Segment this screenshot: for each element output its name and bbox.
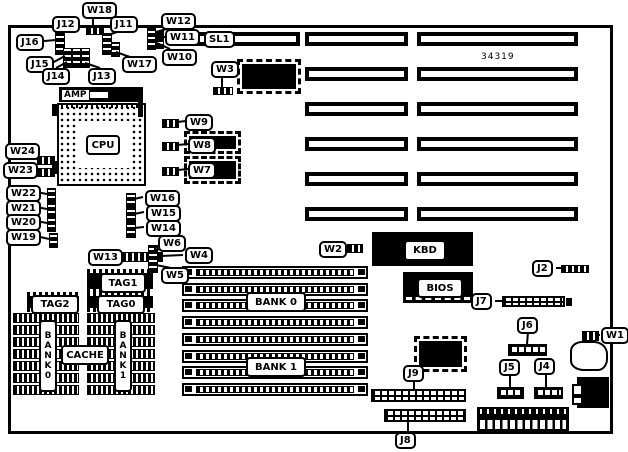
tag0-label: TAG0: [97, 295, 145, 314]
j6-connector: [508, 344, 547, 356]
j2-connector: [561, 265, 589, 273]
simm-socket: [182, 383, 368, 396]
simm-bank0-label: BANK 0: [246, 292, 306, 312]
expansion-slot-segment: [305, 32, 408, 46]
simm-socket: [182, 333, 368, 346]
motherboard-diagram: 34319 SL1 AMP CPU KBD BIOS TAG1 TAG2 TAG…: [0, 0, 628, 452]
simm-socket: [182, 316, 368, 329]
jumper-w3: [213, 87, 233, 95]
keyboard-opening-outline: [570, 341, 608, 371]
jumper-w16: [126, 193, 136, 208]
jumper-w1: [582, 331, 599, 341]
jumper-w12-w10: [147, 27, 156, 50]
jumper-w8: [162, 142, 179, 151]
jumper-w19: [49, 233, 58, 248]
amp-slot-opening: [90, 92, 108, 98]
expansion-slot-segment: [417, 67, 578, 81]
expansion-slot-segment: [305, 137, 408, 151]
simm-socket-contacts: [196, 386, 354, 393]
jumper-w7: [162, 167, 179, 176]
callout-w19: W19: [6, 229, 41, 246]
cache-bank1-label: BANK1: [114, 320, 132, 392]
callout-j14: J14: [42, 68, 70, 85]
callout-w11: W11: [165, 29, 200, 46]
expansion-slot-segment: [305, 172, 408, 186]
jumper-w22: [47, 188, 56, 203]
amp-brand-label: AMP: [61, 89, 90, 101]
callout-j11: J11: [110, 16, 138, 33]
callout-j9: J9: [403, 365, 424, 382]
expansion-slot-segment: [417, 207, 578, 221]
callout-j7: J7: [471, 293, 492, 310]
simm-socket-contacts: [196, 319, 354, 326]
callout-j6: J6: [517, 317, 538, 334]
callout-w24: W24: [5, 143, 40, 160]
cache-label: CACHE: [61, 345, 109, 365]
jumper-w15: [126, 208, 136, 223]
expansion-slot-segment: [305, 207, 408, 221]
cpu-label: CPU: [86, 135, 120, 155]
j8-connector: [384, 409, 466, 422]
j7-connector: [502, 296, 565, 307]
expansion-slot-segment: [305, 102, 408, 116]
j9-connector: [371, 389, 466, 402]
simm-socket-contacts: [196, 336, 354, 343]
callout-w12: W12: [161, 13, 196, 30]
callout-w4: W4: [185, 247, 213, 264]
chip-near-w3: [237, 59, 301, 94]
callout-w9: W9: [185, 114, 213, 131]
jumper-w21: [47, 203, 56, 218]
callout-w10: W10: [162, 49, 197, 66]
callout-w13: W13: [88, 249, 123, 266]
expansion-slot-segment: [305, 67, 408, 81]
jumper-w17: [111, 42, 120, 57]
expansion-slot-segment: [417, 137, 578, 151]
jumper-w20: [47, 217, 56, 232]
jumper-w11: [156, 31, 164, 49]
callout-j5: J5: [499, 359, 520, 376]
callout-j16: J16: [16, 34, 44, 51]
kbd-label: KBD: [404, 240, 446, 261]
callout-w3: W3: [211, 61, 239, 78]
callout-j4: J4: [534, 358, 555, 375]
simm-socket-contacts: [196, 269, 354, 276]
bios-label: BIOS: [417, 278, 463, 298]
expansion-slot-segment: [417, 172, 578, 186]
amp-socket-bar: AMP: [59, 87, 139, 102]
expansion-slot-segment: [417, 102, 578, 116]
keyboard-connector-tab-2: [572, 396, 583, 405]
jumper-w14: [126, 222, 136, 238]
j4-connector: [534, 387, 563, 399]
cache-bank0-label: BANK0: [39, 320, 57, 392]
callout-w5: W5: [161, 267, 189, 284]
callout-j8: J8: [395, 432, 416, 449]
jumper-w23: [37, 168, 55, 177]
callout-w7: W7: [188, 162, 216, 179]
tag1-label: TAG1: [100, 273, 146, 293]
jumper-j13: [81, 48, 90, 68]
callout-j2: J2: [532, 260, 553, 277]
board-part-number: 34319: [481, 52, 515, 62]
callout-j13: J13: [88, 68, 116, 85]
callout-w2: W2: [319, 241, 347, 258]
j5-connector: [497, 387, 524, 399]
jumper-w2: [347, 244, 363, 253]
jumper-j14: [72, 48, 81, 68]
jumper-w9: [162, 119, 179, 128]
j7-connector-end: [566, 298, 572, 306]
callout-w6: W6: [158, 235, 186, 252]
jumper-w6-w5: [148, 245, 158, 273]
callout-w17: W17: [122, 56, 157, 73]
power-connector-pins: [480, 409, 566, 414]
callout-j12: J12: [52, 16, 80, 33]
simm-socket: [182, 266, 368, 279]
keyboard-connector-tab-1: [572, 384, 583, 396]
expansion-slot-segment: [417, 32, 578, 46]
simm-bank1-label: BANK 1: [246, 357, 306, 377]
power-connector: [477, 407, 569, 431]
callout-w1: W1: [601, 327, 628, 344]
callout-w8: W8: [188, 137, 216, 154]
callout-w23: W23: [3, 162, 38, 179]
tag2-label: TAG2: [31, 295, 79, 314]
cpu-socket-tab-top: [52, 104, 58, 116]
jumper-w24: [37, 156, 55, 165]
jumper-j15: [63, 48, 72, 68]
power-connector-teeth: [480, 420, 566, 429]
slot-sl1-label: SL1: [204, 31, 235, 48]
